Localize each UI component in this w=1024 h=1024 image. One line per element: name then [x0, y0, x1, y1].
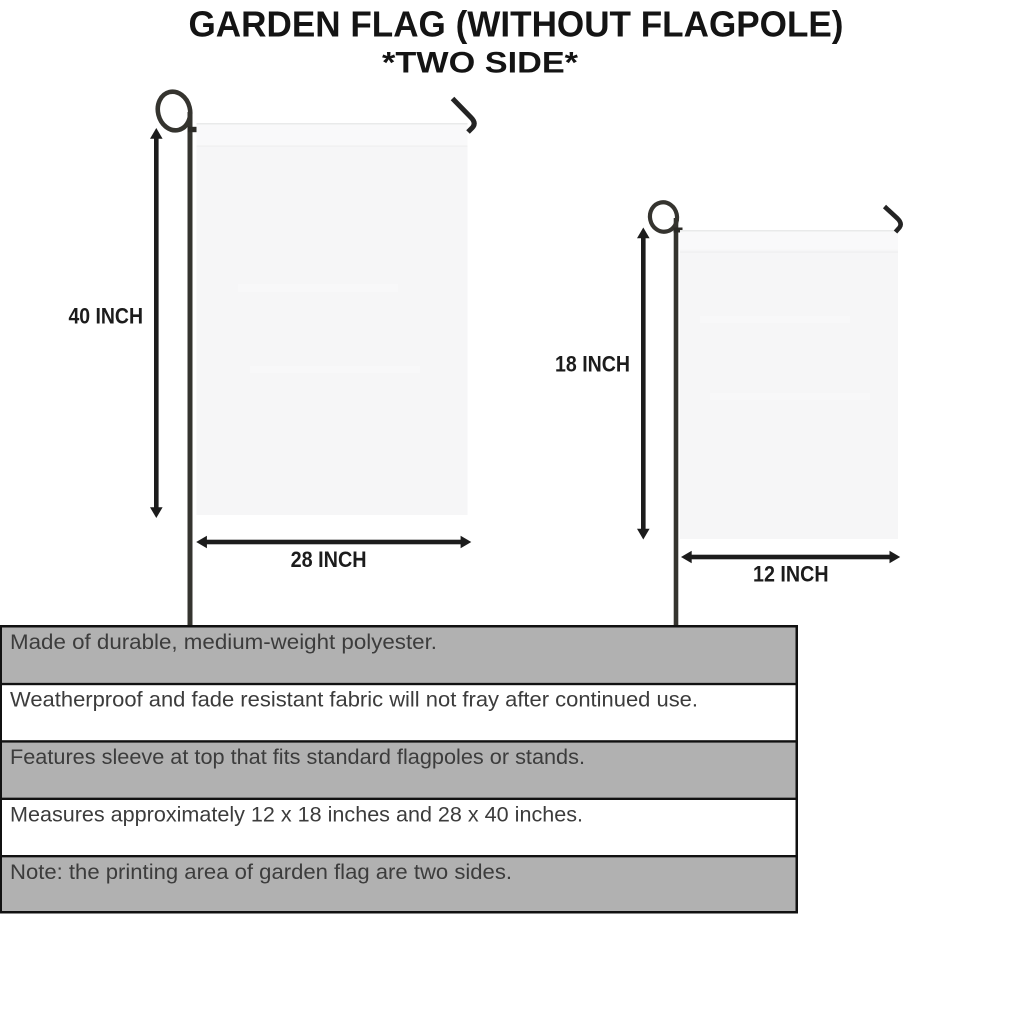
svg-text:Features sleeve at top that fi: Features sleeve at top that fits standar…: [10, 746, 585, 769]
svg-text:Note: the printing area of gar: Note: the printing area of garden flag a…: [10, 861, 512, 884]
svg-text:18 INCH: 18 INCH: [555, 352, 630, 377]
svg-text:*TWO SIDE*: *TWO SIDE*: [382, 47, 578, 80]
svg-text:GARDEN FLAG (WITHOUT FLAGPOLE): GARDEN FLAG (WITHOUT FLAGPOLE): [189, 4, 844, 45]
svg-text:12 INCH: 12 INCH: [753, 562, 829, 587]
svg-text:Made of durable, medium-weight: Made of durable, medium-weight polyester…: [10, 631, 437, 654]
svg-text:28 INCH: 28 INCH: [291, 547, 367, 572]
svg-text:40 INCH: 40 INCH: [69, 304, 144, 329]
svg-text:Weatherproof and fade resistan: Weatherproof and fade resistant fabric w…: [10, 689, 698, 712]
svg-text:Measures approximately 12 x 18: Measures approximately 12 x 18 inches an…: [10, 804, 583, 827]
